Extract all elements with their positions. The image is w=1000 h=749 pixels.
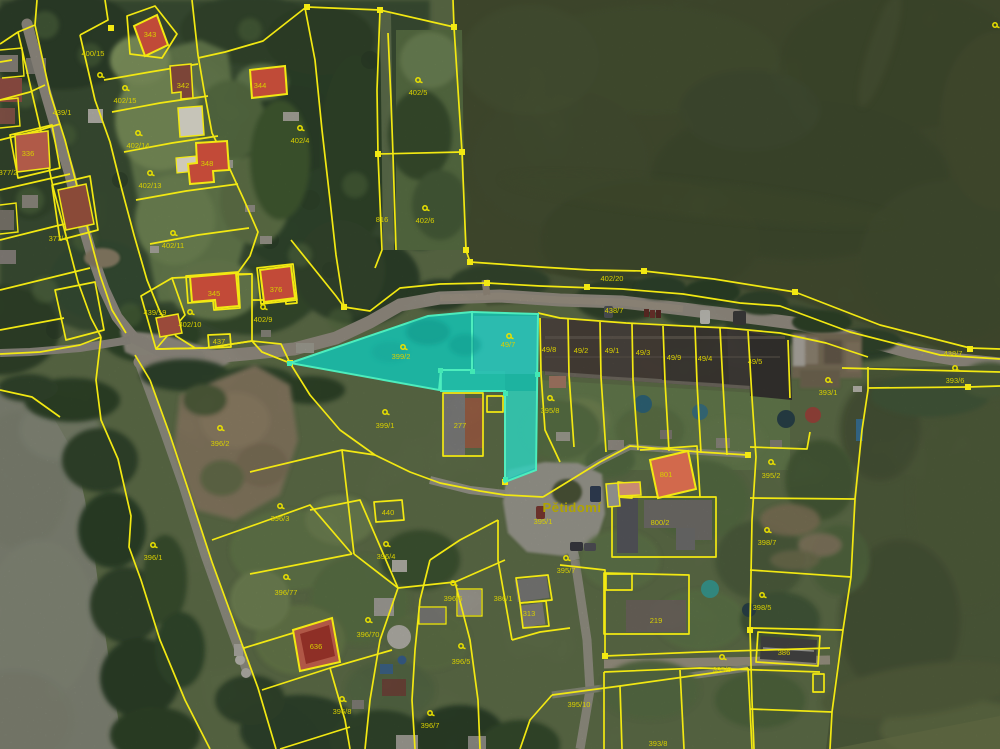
- svg-text:313: 313: [523, 609, 536, 618]
- svg-text:395/1: 395/1: [534, 517, 553, 526]
- svg-text:49/1: 49/1: [605, 346, 620, 355]
- svg-text:399/1: 399/1: [376, 421, 395, 430]
- svg-text:Pětidomí: Pětidomí: [543, 500, 602, 515]
- svg-text:800/2: 800/2: [651, 518, 670, 527]
- svg-text:377/4: 377/4: [49, 234, 68, 243]
- svg-text:636: 636: [310, 642, 323, 651]
- svg-text:398/5: 398/5: [753, 603, 772, 612]
- svg-text:393/1: 393/1: [819, 388, 838, 397]
- svg-text:400/15: 400/15: [82, 49, 105, 58]
- svg-text:49/3: 49/3: [636, 348, 651, 357]
- svg-text:396/7: 396/7: [421, 721, 440, 730]
- svg-text:440: 440: [382, 508, 395, 517]
- svg-text:396/2: 396/2: [211, 439, 230, 448]
- svg-text:219: 219: [650, 616, 663, 625]
- svg-text:402/14: 402/14: [127, 141, 150, 150]
- svg-text:386/1: 386/1: [494, 594, 513, 603]
- svg-text:396/1: 396/1: [144, 553, 163, 562]
- svg-text:277: 277: [454, 421, 467, 430]
- svg-text:402/9: 402/9: [254, 315, 273, 324]
- svg-text:402/4: 402/4: [291, 136, 310, 145]
- svg-text:396/8: 396/8: [333, 707, 352, 716]
- svg-text:438/7: 438/7: [944, 349, 963, 358]
- svg-text:396/6: 396/6: [444, 594, 463, 603]
- svg-text:49/8: 49/8: [542, 345, 557, 354]
- svg-text:399/2: 399/2: [392, 352, 411, 361]
- svg-text:336: 336: [22, 149, 35, 158]
- svg-text:439/1: 439/1: [53, 108, 72, 117]
- svg-text:402/10: 402/10: [179, 320, 202, 329]
- svg-text:402/5: 402/5: [409, 88, 428, 97]
- svg-text:402/20: 402/20: [601, 274, 624, 283]
- svg-text:395/9: 395/9: [713, 665, 732, 674]
- svg-text:395/7: 395/7: [557, 566, 576, 575]
- svg-text:49/9: 49/9: [667, 353, 682, 362]
- svg-text:439/19: 439/19: [144, 308, 167, 317]
- svg-text:801: 801: [660, 470, 673, 479]
- svg-text:816: 816: [376, 215, 389, 224]
- svg-text:393/6: 393/6: [946, 376, 965, 385]
- svg-text:49/2: 49/2: [574, 346, 589, 355]
- svg-text:345: 345: [208, 289, 221, 298]
- svg-text:49/5: 49/5: [748, 357, 763, 366]
- svg-text:395/8: 395/8: [541, 406, 560, 415]
- svg-text:386: 386: [778, 648, 791, 657]
- svg-text:376: 376: [270, 285, 283, 294]
- svg-text:343: 343: [144, 30, 157, 39]
- svg-text:396/70: 396/70: [357, 630, 380, 639]
- svg-text:396/3: 396/3: [271, 514, 290, 523]
- svg-text:396/77: 396/77: [275, 588, 298, 597]
- svg-text:438/7: 438/7: [605, 306, 624, 315]
- svg-text:396/4: 396/4: [377, 552, 396, 561]
- svg-text:396/5: 396/5: [452, 657, 471, 666]
- svg-text:398/7: 398/7: [758, 538, 777, 547]
- svg-text:402/15: 402/15: [114, 96, 137, 105]
- svg-text:437: 437: [213, 337, 226, 346]
- svg-text:395/2: 395/2: [762, 471, 781, 480]
- svg-text:49/7: 49/7: [501, 340, 516, 349]
- svg-text:49/4: 49/4: [698, 354, 713, 363]
- svg-text:344: 344: [254, 81, 267, 90]
- svg-text:342: 342: [177, 81, 190, 90]
- svg-text:395/10: 395/10: [568, 700, 591, 709]
- svg-text:402/6: 402/6: [416, 216, 435, 225]
- svg-text:393/8: 393/8: [649, 739, 668, 748]
- svg-text:402/11: 402/11: [162, 241, 184, 250]
- svg-text:402/13: 402/13: [139, 181, 162, 190]
- svg-text:377/2: 377/2: [0, 168, 17, 177]
- svg-text:348: 348: [201, 159, 214, 168]
